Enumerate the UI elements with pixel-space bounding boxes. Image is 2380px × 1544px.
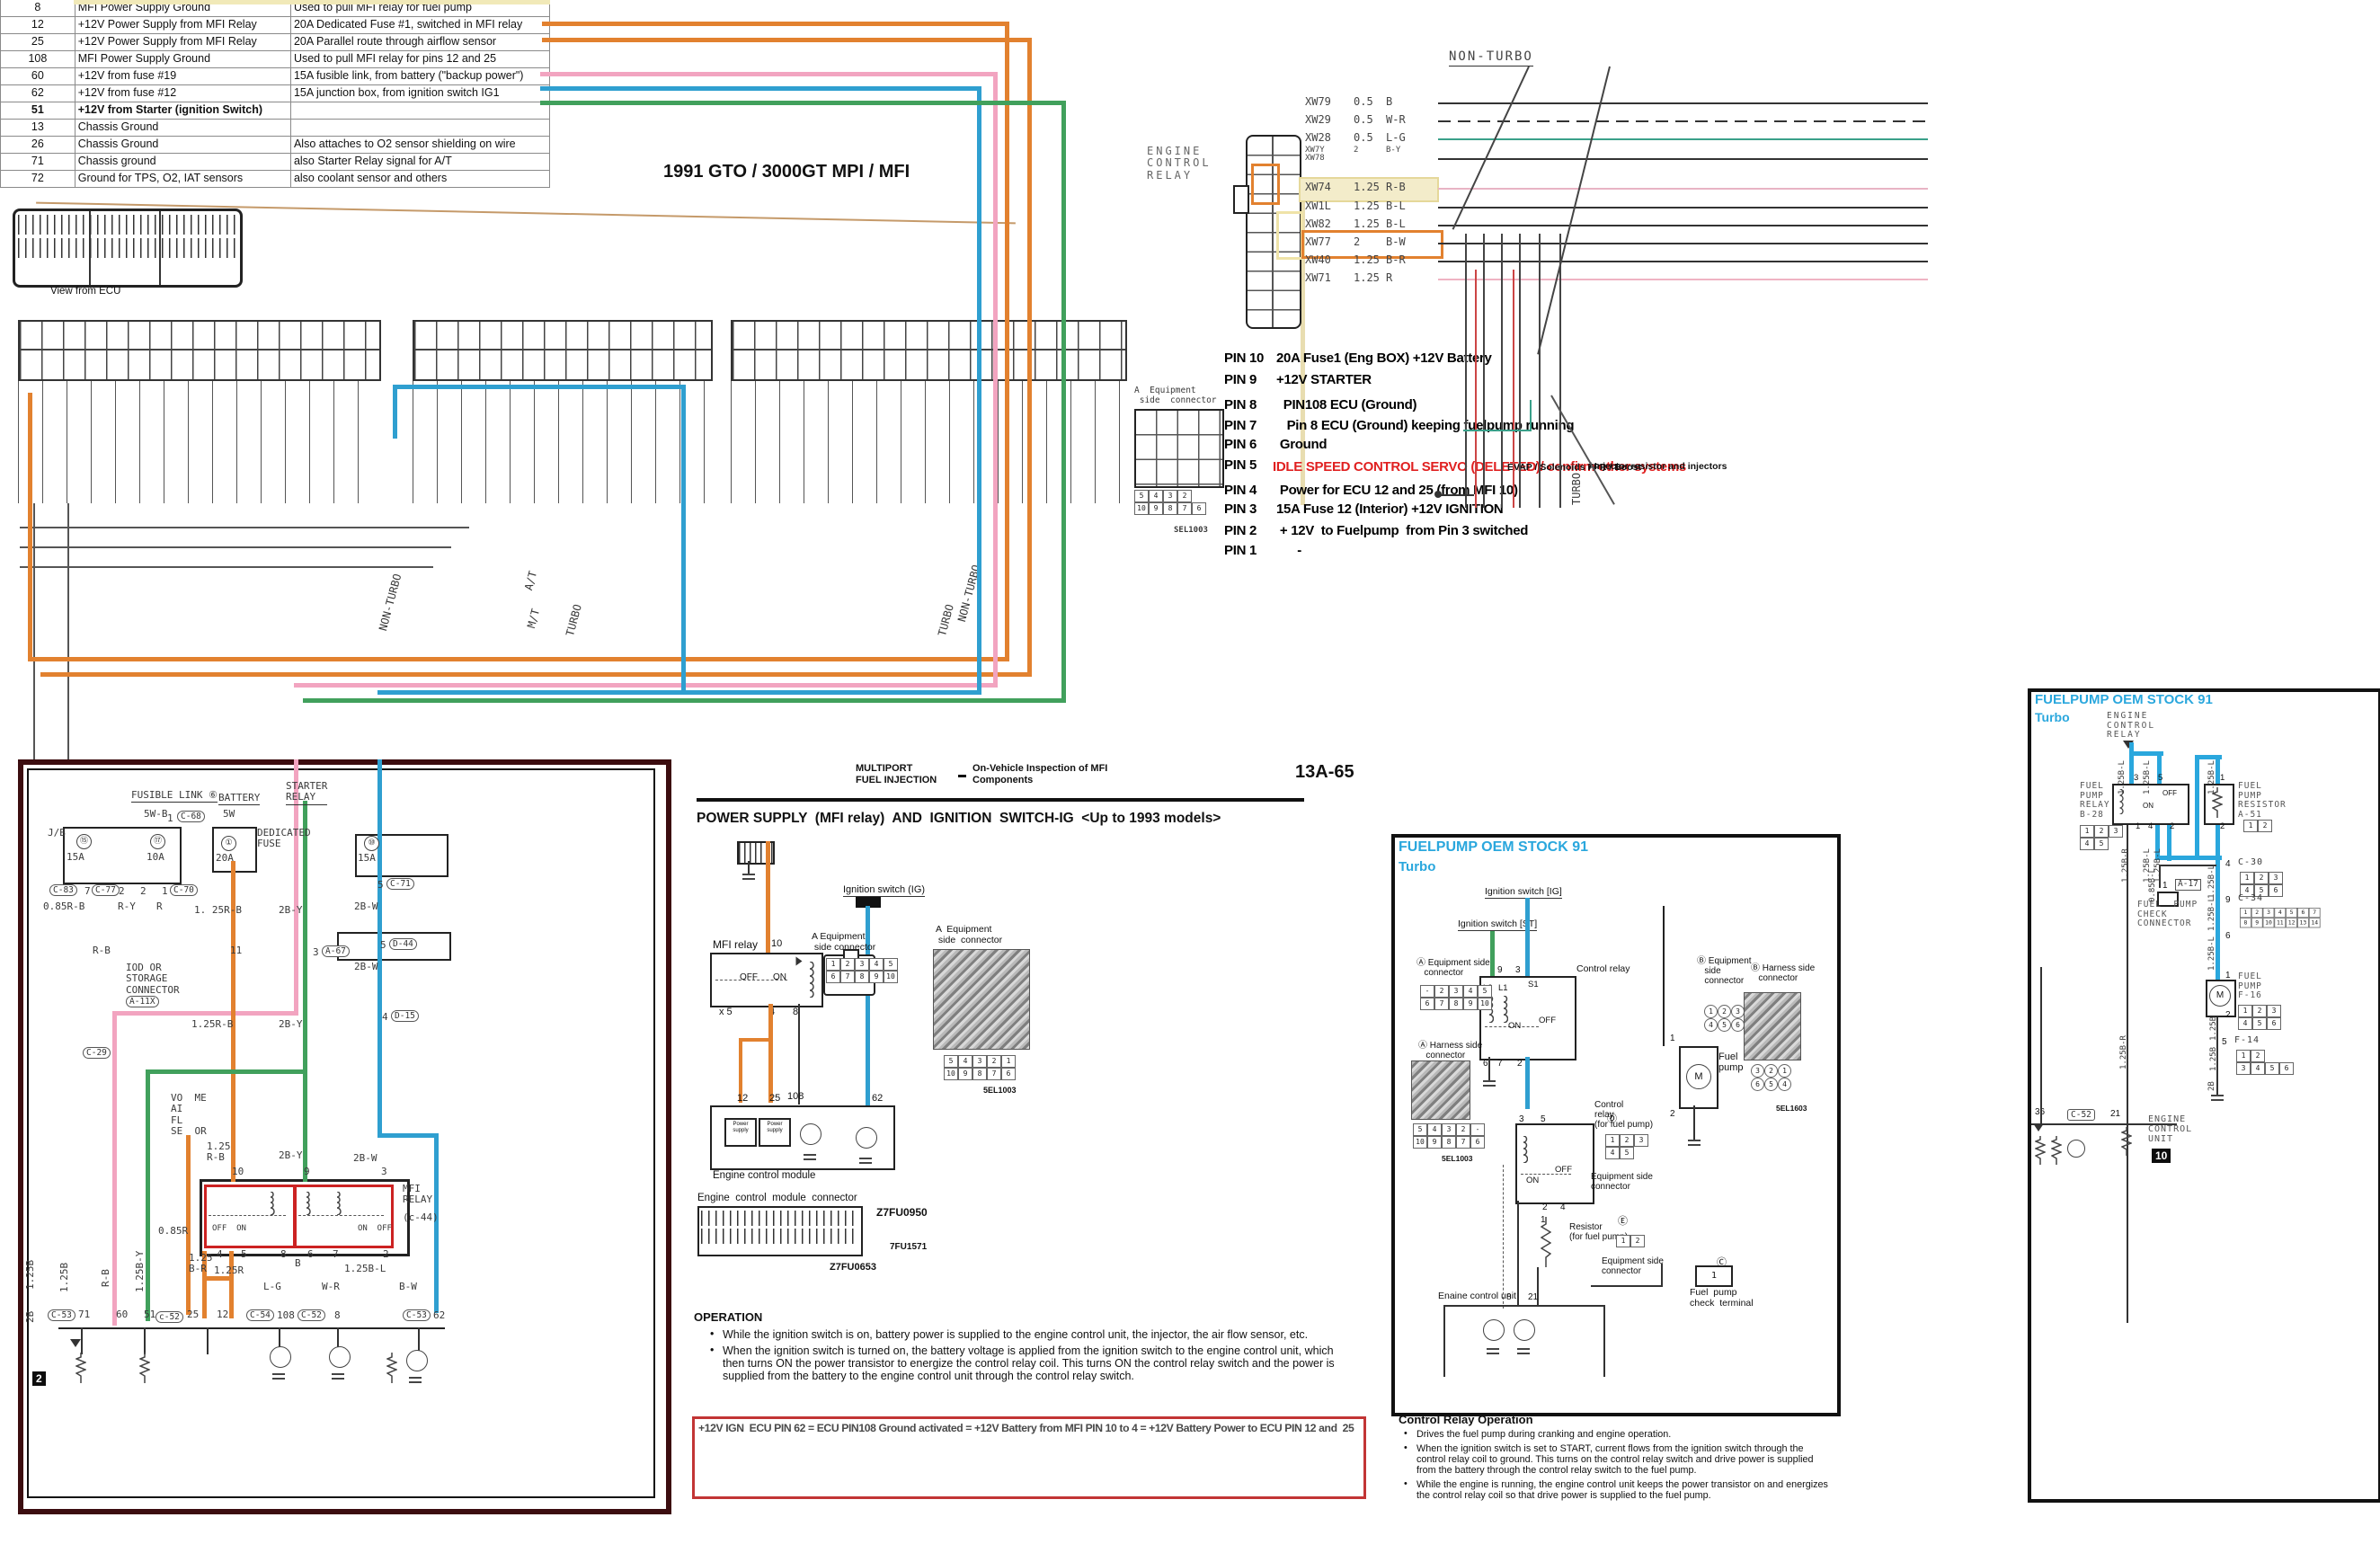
connector-ref: A-67 (322, 945, 350, 957)
pin-label: 8 (1506, 1292, 1512, 1302)
ecr-nonturbo-label: NON-TURBO (1449, 50, 1533, 67)
relay-state: OFF (740, 972, 758, 982)
lbl-fuel-pump: Fuel pump (1718, 1052, 1744, 1073)
wire-label: B (295, 1258, 301, 1269)
pin-list-row: PIN 1020A Fuse1 (Eng BOX) +12V Battery (1224, 351, 1492, 366)
ecr-highlight-orange (1251, 164, 1280, 205)
lbl-ecm: Engine control module (713, 1170, 815, 1181)
ecr-wire-cell: XW40 (1305, 253, 1354, 266)
connector-ref: D-15 (391, 1010, 419, 1022)
ecm-connector-drawing (697, 1206, 863, 1256)
connector-pin-cell: 3 (2109, 825, 2123, 838)
connector-pin-cell: 5 (1718, 1018, 1731, 1032)
connector-pin-cell: 9 (958, 1068, 972, 1080)
table-row: 72Ground for TPS, O2, IAT sensorsalso co… (0, 171, 550, 188)
wire-fan (413, 381, 709, 503)
pin-label: 9 (304, 1167, 310, 1177)
connector-pin-cell: 4 (2274, 908, 2286, 918)
fuse-rating: 20A (216, 853, 234, 864)
pin-number: PIN 8 (1224, 397, 1276, 413)
fuse-number: ⑰ (150, 834, 165, 849)
lbl-control-relay: Control relay (1576, 963, 1630, 974)
connector-pin-cell: 1 (2240, 872, 2254, 884)
connector-pin-cell: 6 (826, 971, 840, 983)
ecr-wire-cell: B-L (1386, 200, 1422, 212)
lbl-mfi-relay: MFI RELAY (403, 1184, 432, 1206)
pin-label: 5 (380, 940, 386, 951)
connector-ref: D-44 (389, 938, 417, 950)
lbl-ecm-connector: Engine control module connector (697, 1193, 857, 1203)
check-terminal-box: 1 (1695, 1265, 1733, 1287)
connector-pin-cell: 9 (1427, 1136, 1442, 1149)
table-cell: Chassis Ground (75, 120, 290, 136)
pin-number: PIN 9 (1224, 372, 1276, 387)
connector-ref: C-34 (2238, 893, 2263, 903)
connector-ref: C-53 (403, 1309, 431, 1321)
table-cell: +12V from fuse #19 (75, 68, 290, 84)
ecr-wire-row: XW1L1.25B-L (1305, 200, 1422, 212)
relay-state: OFF ON (212, 1224, 246, 1233)
connector-pin-cell: 6 (1751, 1078, 1764, 1091)
connector-pin-cell: 2 (987, 1055, 1001, 1068)
connector-pin-cell: 10 (1478, 998, 1492, 1010)
pin-description: Ground (1276, 437, 1327, 452)
equip-connector-glyph (1134, 409, 1224, 488)
connector-pin-cell: 2 (1630, 1235, 1645, 1247)
connector-pin-cell: 1 (1704, 1005, 1718, 1018)
connectorD-grid: 12345 (1605, 1134, 1648, 1159)
pin-label: 4 (2225, 859, 2231, 869)
transistor (270, 1346, 291, 1368)
connector-pin-cell: 2 (2094, 825, 2109, 838)
wire-label: 1.25B-L (2143, 760, 2152, 794)
connector-pin-cell: 5 (2252, 1017, 2267, 1030)
panel-subtitle: Turbo (2035, 710, 2070, 724)
b28-grid: 12345 (2080, 825, 2123, 850)
connector-pin-cell: 6 (1192, 502, 1206, 515)
connector-pin-cell: 12 (2286, 918, 2297, 927)
connector-pin-cell: 4 (1463, 985, 1478, 998)
motor-symbol: M (2209, 985, 2231, 1007)
pin-list-row: PIN 2 + 12V to Fuelpump from Pin 3 switc… (1224, 523, 1528, 538)
lbl-starter-relay: STARTER RELAY (286, 781, 327, 805)
ecu-connector-drawing (13, 209, 243, 288)
connector-pin-cell: 3 (2263, 908, 2275, 918)
wire-label: R-Y (118, 901, 136, 912)
ecr-wire-cell: XW74 (1305, 181, 1354, 193)
f14-grid: 123456 (2236, 1050, 2294, 1075)
ecu-pin: 8 (334, 1310, 341, 1321)
pin-label: 2 (383, 1249, 389, 1260)
ecr-wire-cell: L-G (1386, 131, 1422, 144)
lbl-fusible-link: FUSIBLE LINK ⑥ (131, 790, 218, 803)
table-cell: also coolant sensor and others (290, 171, 549, 187)
wire-label: R-B (93, 945, 111, 956)
pin-label: 4 (217, 1249, 223, 1260)
page-title: 1991 GTO / 3000GT MPI / MFI (663, 162, 910, 182)
ecu-pin: 62 (872, 1093, 883, 1104)
connector-pin-cell: 11 (2274, 918, 2286, 927)
ecu-pin: 108 (787, 1091, 804, 1102)
connector-ref: C-52 (2067, 1109, 2095, 1121)
relay-state: ON OFF (358, 1224, 392, 1233)
cro-heading: Control Relay Operation (1399, 1413, 1533, 1426)
fuse-number: ⑮ (76, 834, 92, 849)
equip-pin-grid: 12345678910 (826, 958, 898, 983)
ecr-wire-row: XW772B-W (1305, 235, 1422, 248)
connector-pin-cell: 8 (1449, 998, 1463, 1010)
doc-header-mid: On-Vehicle Inspection of MFI (972, 763, 1107, 774)
sheet-number: 10 (2152, 1149, 2171, 1163)
connector-pin-cell: 10 (2263, 918, 2275, 927)
connector-ref: C-77 (92, 884, 120, 896)
wire-label: 2B-Y (279, 1150, 303, 1161)
wire-label: 1.25B (25, 1260, 36, 1290)
pin-label: 10 (771, 938, 782, 949)
connector-photo (1411, 1060, 1470, 1120)
connector-pin-cell: 9 (1463, 998, 1478, 1010)
table-cell: Ground for TPS, O2, IAT sensors (75, 171, 290, 187)
ecr-wire-cell: 1.25 (1354, 217, 1386, 230)
lbl-fuel-pump-check: FUEL PUMP CHECK CONNECTOR (2137, 901, 2198, 929)
table-row: 62+12V from fuse #1215A junction box, fr… (0, 85, 550, 102)
pin-description: + 12V to Fuelpump from Pin 3 switched (1276, 523, 1528, 538)
connector-pin-cell: 3 (1634, 1134, 1648, 1147)
connector-pin-cell: 8 (972, 1068, 987, 1080)
connector-pin-cell: 3 (1751, 1064, 1764, 1078)
pin-description: PIN108 ECU (Ground) (1276, 397, 1416, 413)
ecr-wire-cell: XW7Y XW78 (1305, 146, 1354, 164)
table-cell: Chassis ground (75, 154, 290, 170)
ecr-label: ENGINE CONTROL RELAY (1147, 146, 1212, 182)
power-supply-block: Power supply (759, 1118, 791, 1147)
ecr-wire-cell: R (1386, 271, 1422, 284)
pin-label: 1 (2162, 881, 2168, 891)
wire-label: 1.25R-B (191, 1019, 233, 1030)
table-cell: +12V Power Supply from MFI Relay (75, 34, 290, 50)
ecu-pin: 51 (144, 1309, 155, 1320)
connector-pin-cell: 7 (840, 971, 855, 983)
ecr-wire-row: XW7Y XW782B-Y (1305, 146, 1422, 164)
cro-bullet: While the engine is running, the engine … (1402, 1479, 1834, 1501)
pin-number: PIN 2 (1224, 523, 1276, 538)
table-cell: 108 (1, 51, 75, 67)
connector-pin-cell: 6 (1420, 998, 1434, 1010)
connector-block (731, 320, 1127, 381)
cro-text: Drives the fuel pump during cranking and… (1402, 1429, 1834, 1504)
wire-label: W-R (322, 1282, 340, 1292)
pin-label: 3 (2134, 773, 2138, 783)
table-cell: Used to pull MFI relay for pins 12 and 2… (290, 51, 549, 67)
table-cell: 72 (1, 171, 75, 187)
ecr-wire-cell: XW1L (1305, 200, 1354, 212)
operation-bullet: While the ignition switch is on, battery… (708, 1328, 1343, 1341)
ecr-wire-row: XW741.25R-B (1305, 181, 1422, 193)
connector-pin-cell: 13 (2297, 918, 2309, 927)
connector-pin-cell: 4 (1427, 1123, 1442, 1136)
pin-label: 7 (333, 1249, 339, 1260)
rot-label-at: A/T (523, 570, 540, 591)
ecr-wire-cell: XW82 (1305, 217, 1354, 230)
lbl-harnessA: Ⓐ Harness side connector (1418, 1037, 1482, 1060)
connector-pin-cell: 2 (2251, 908, 2263, 918)
connector-pin-cell: 3 (1442, 1123, 1456, 1136)
sheet-number: 2 (32, 1371, 46, 1386)
ecr-wire-cell: 0.5 (1354, 113, 1386, 126)
pin-label: 2 (1670, 1109, 1675, 1119)
connector-ref: A-11X (126, 996, 159, 1007)
connector-pin-cell: 1 (1605, 1134, 1620, 1147)
connector-ref: A-17 (2175, 879, 2201, 891)
table-cell: Also attaches to O2 sensor shielding on … (290, 137, 549, 153)
wire-label: 5W-B (144, 809, 168, 820)
wire-label: 1.25B-L (2207, 760, 2216, 794)
table-cell: 15A junction box, from ignition switch I… (290, 85, 549, 102)
ecr-wire-cell: 2 (1354, 146, 1386, 164)
connector-ref: C-83 (49, 884, 77, 896)
wire-label: 1.25B-L (2207, 936, 2216, 971)
wire-label: B-W (399, 1282, 417, 1292)
relay-state: ON (1508, 1021, 1521, 1031)
connector-pin-cell: 2 (840, 958, 855, 971)
rot-label-turbo: TURBO (1571, 473, 1583, 505)
wire-label: 1.25B (59, 1263, 70, 1292)
wire-label: 1.25R (214, 1265, 244, 1276)
pin-label: 3 (381, 1167, 387, 1177)
connector-ref: C-71 (386, 878, 414, 890)
ecr-wire-row: XW711.25R (1305, 271, 1422, 284)
section-title: POWER SUPPLY (MFI relay) AND IGNITION SW… (697, 811, 1221, 827)
wire-label: 1.25B-Y (135, 1251, 146, 1292)
connectorE-grid: 12 (1616, 1235, 1645, 1247)
lbl-equipD: Equipment side connector (1591, 1172, 1653, 1192)
equipB-grid: 123456 (1704, 1005, 1745, 1032)
pin-description: - (1276, 543, 1301, 558)
pin-list-row: PIN 8 PIN108 ECU (Ground) (1224, 397, 1416, 413)
ecr-wire-row: XW401.25B-R (1305, 253, 1422, 266)
lbl-dedicated-fuse: DEDICATED FUSE (257, 828, 311, 850)
connector-pin-cell: 3 (855, 958, 869, 971)
connector-pin-cell: 5 (884, 958, 898, 971)
connector-ref: C-53 (48, 1309, 75, 1321)
transistor (856, 1127, 877, 1149)
connector-pin-cell: 3 (1449, 985, 1463, 998)
diode (70, 1339, 81, 1347)
pin-label: 9 (2225, 895, 2231, 905)
pin-label: 7 (84, 886, 91, 897)
pin-number: PIN 6 (1224, 437, 1276, 452)
summary-text: +12V IGN ECU PIN 62 = ECU PIN108 Ground … (698, 1422, 1354, 1434)
wire-label: 1.25B (2209, 1016, 2218, 1041)
ecr-wire-cell: XW71 (1305, 271, 1354, 284)
connector-pin-cell: 5 (1764, 1078, 1778, 1091)
lbl-ignition-switch: Ignition switch (IG) (843, 884, 925, 897)
wire-label: L-G (263, 1282, 281, 1292)
transistor (1514, 1319, 1535, 1341)
pin-label: 1 (2220, 773, 2225, 783)
table-cell: 8 (1, 0, 75, 16)
connector-ref: C-68 (177, 811, 205, 822)
ecr-wire-cell: B-R (1386, 253, 1422, 266)
table-cell: Chassis Ground (75, 137, 290, 153)
connector-pin-cell: 6 (2269, 884, 2283, 897)
ecr-wire-cell: XW28 (1305, 131, 1354, 144)
wire-label: 5W (223, 809, 235, 820)
pin-label: 8 (280, 1249, 287, 1260)
wire-label: 2B-Y (279, 905, 303, 916)
table-cell: 15A fusible link, from battery ("backup … (290, 68, 549, 84)
ecu-view-caption: View from ECU (50, 286, 120, 297)
connector-photo (1744, 992, 1801, 1060)
table-cell: 20A Dedicated Fuse #1, switched in MFI r… (290, 17, 549, 33)
pin-label: 2 (119, 886, 125, 897)
connector-pin-cell: 5 (1413, 1123, 1427, 1136)
connector-pin-cell: 5 (944, 1055, 958, 1068)
pin-description: Power for ECU 12 and 25 (from MFI 10) (1276, 483, 1518, 498)
connector-pin-cell: 7 (1434, 998, 1449, 1010)
fuse-number: ⑩ (364, 836, 379, 851)
pin-label: 5 (377, 880, 384, 891)
pin-label: 4 (382, 1012, 388, 1023)
lbl-engine-control-unit: Enaine control unit (1438, 1291, 1516, 1301)
connector-pin-cell: 5 (2265, 1062, 2279, 1075)
panel-title: FUELPUMP OEM STOCK 91 (1399, 839, 1588, 856)
harnessA-grid: 5432-109876 (1413, 1123, 1485, 1149)
pin-label: 6 (1483, 1059, 1488, 1069)
connector-pin-cell: 6 (2297, 908, 2309, 918)
panel-subtitle: Turbo (1399, 859, 1435, 874)
figure-code: 7FU1571 (890, 1242, 927, 1252)
figure-code: 5EL1003 (983, 1086, 1017, 1095)
ecu-pin: 60 (116, 1309, 128, 1320)
cro-bullet: Drives the fuel pump during cranking and… (1402, 1429, 1834, 1440)
table-row: 108MFI Power Supply GroundUsed to pull M… (0, 51, 550, 68)
table-cell: +12V from Starter (ignition Switch) (75, 102, 290, 119)
connector-pin-cell: 2 (2258, 820, 2272, 832)
ecr-highlight-cream (1276, 211, 1303, 260)
connector-pin-cell: - (1420, 985, 1434, 998)
connector-pin-cell: 7 (987, 1068, 1001, 1080)
ecr-wire-cell: 1.25 (1354, 271, 1386, 284)
pin-label: 2 (140, 886, 147, 897)
connector-pin-cell: 2 (1764, 1064, 1778, 1078)
wire-label: 1.25B-L (2207, 865, 2216, 899)
table-cell: +12V from fuse #12 (75, 85, 290, 102)
connector-pin-cell: 5 (2286, 908, 2297, 918)
connector-pin-cell: 4 (2238, 1017, 2252, 1030)
pin-label: 3 (1515, 965, 1521, 975)
connector-pin-cell: 3 (1163, 490, 1177, 502)
pin-label: 2 (1517, 1059, 1523, 1069)
connector-pin-cell: 9 (1149, 502, 1163, 515)
lbl-equipA: Ⓐ Equipment side connector (1416, 954, 1490, 978)
pin-label: 4 (2148, 821, 2153, 831)
transistor (329, 1346, 351, 1368)
ecu-pin-row (18, 215, 237, 235)
wire-label: 0.85B-L (2148, 868, 2157, 902)
pin-label: 2 (2170, 821, 2174, 831)
ecr-wire-cell: XW29 (1305, 113, 1354, 126)
table-cell: 26 (1, 137, 75, 153)
ecu-pin: 71 (78, 1309, 90, 1320)
connector-pin-cell: 8 (1442, 1136, 1456, 1149)
connector-letter: Ⓔ (1618, 1213, 1628, 1228)
transistor (1483, 1319, 1505, 1341)
pin-label: 1 (167, 813, 173, 824)
connector-pin-cell: 14 (2309, 918, 2321, 927)
connector-ref: C-54 (246, 1309, 274, 1321)
connector-pin-cell: 7 (1456, 1136, 1470, 1149)
connector-ref: C-70 (170, 884, 198, 896)
table-cell (290, 120, 549, 136)
table-cell: also Starter Relay signal for A/T (290, 154, 549, 170)
connector-pin-cell: 3 (2269, 872, 2283, 884)
pin-list-row: PIN 5 (1224, 457, 1276, 473)
table-cell: 62 (1, 85, 75, 102)
connector-pin-cell: 4 (869, 958, 884, 971)
connector-pin-cell: 9 (869, 971, 884, 983)
pin-number: PIN 5 (1224, 457, 1276, 473)
lbl-control-relay-fp: Control relay (for fuel pump) (1594, 1100, 1653, 1130)
connector-letter: Ⓓ (1607, 1111, 1617, 1125)
doc-header-left: MULTIPORT (856, 763, 912, 774)
pin-list-row: PIN 315A Fuse 12 (Interior) +12V IGNITIO… (1224, 501, 1503, 517)
pin-label: 5 (241, 1249, 247, 1260)
connector-pin-cell: 8 (2240, 918, 2251, 927)
fuse-rating: 15A (358, 853, 376, 864)
connector-pin-cell: 5 (2094, 838, 2109, 850)
figure-code: Z7FU0950 (876, 1206, 928, 1219)
table-cell (290, 102, 549, 119)
pin-label: 4 (1560, 1202, 1566, 1212)
lbl-airflow-sensor: VO ME AI FL SE OR (171, 1093, 207, 1137)
pin5-side-note2: / Injector resistor and injectors (1589, 461, 1727, 472)
ecr-wire-cell: B-Y (1386, 146, 1422, 164)
ecr-wire-row: XW821.25B-L (1305, 217, 1422, 230)
figure-code: 5EL1603 (1776, 1104, 1807, 1113)
ecr-wire-cell: XW79 (1305, 95, 1354, 108)
ecr-wire-cell: B-L (1386, 217, 1422, 230)
wire-label: 2B (25, 1311, 36, 1323)
connector-pin-cell: 1 (2240, 908, 2251, 918)
connector-ref: C-30 (2238, 857, 2263, 867)
connector-pin-cell: 6 (1001, 1068, 1016, 1080)
table-row: 71Chassis groundalso Starter Relay signa… (0, 154, 550, 171)
connector-pin-cell: 8 (1163, 502, 1177, 515)
wire-label: 1.25B-R (2121, 848, 2130, 883)
ecu-pin: 25 (187, 1309, 199, 1320)
table-cell: 71 (1, 154, 75, 170)
connector-pin-cell: 5 (1478, 985, 1492, 998)
transistor (2067, 1140, 2085, 1158)
pin-description: 20A Fuse1 (Eng BOX) +12V Battery (1276, 351, 1492, 366)
pin-label: 2 (2225, 1010, 2231, 1020)
connector-pin-cell: 5 (1134, 490, 1149, 502)
operation-heading: OPERATION (694, 1310, 762, 1324)
table-cell: 60 (1, 68, 75, 84)
ecr-wire-cell: B-W (1386, 235, 1422, 248)
connector-pin-cell: 6 (2279, 1062, 2294, 1075)
wire-label: 1.25 B-R (189, 1253, 213, 1275)
transistor (800, 1123, 821, 1145)
connector-pin-cell: 2 (1177, 490, 1192, 502)
ecr-wire-cell: B (1386, 95, 1422, 108)
pin-list-row: PIN 1 - (1224, 543, 1301, 558)
connector-pin-cell: 1 (2236, 1050, 2251, 1062)
rot-label-nonturbo: NON-TURBO (377, 572, 404, 632)
pin-label: 2 (2220, 821, 2225, 831)
ecr-wire-row: XW790.5B (1305, 95, 1422, 108)
